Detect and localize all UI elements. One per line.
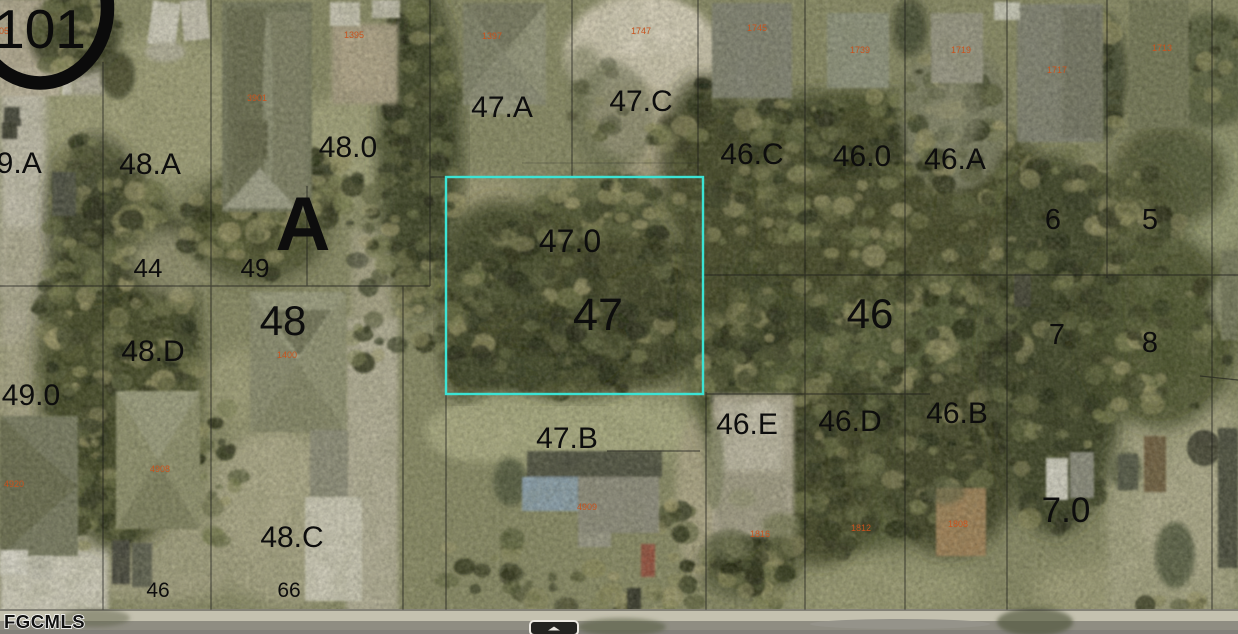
svg-text:46.D: 46.D (818, 405, 881, 438)
svg-text:46.B: 46.B (926, 397, 988, 430)
svg-text:46.0: 46.0 (833, 140, 891, 173)
svg-text:48.D: 48.D (121, 335, 184, 368)
svg-text:1808: 1808 (948, 519, 968, 529)
svg-text:48.A: 48.A (119, 148, 181, 181)
svg-text:46: 46 (847, 290, 894, 337)
svg-text:48.C: 48.C (260, 521, 323, 554)
svg-text:46.C: 46.C (720, 138, 783, 171)
svg-text:48.0: 48.0 (319, 131, 377, 164)
svg-text:1713: 1713 (1152, 43, 1172, 53)
svg-text:1395: 1395 (344, 30, 364, 40)
svg-text:1812: 1812 (851, 523, 871, 533)
svg-text:1397: 1397 (482, 31, 502, 41)
svg-text:6: 6 (1045, 204, 1061, 236)
svg-text:3901: 3901 (247, 93, 267, 103)
svg-text:1747: 1747 (631, 26, 651, 36)
svg-text:1816: 1816 (750, 529, 770, 539)
svg-text:7: 7 (1049, 319, 1065, 351)
svg-text:8: 8 (1142, 327, 1158, 359)
svg-text:47: 47 (573, 289, 623, 340)
svg-text:1719: 1719 (951, 45, 971, 55)
svg-text:7.0: 7.0 (1042, 491, 1091, 530)
svg-text:44: 44 (134, 253, 163, 283)
svg-text:101: 101 (0, 0, 86, 60)
svg-text:49.0: 49.0 (2, 379, 60, 412)
svg-text:1739: 1739 (850, 45, 870, 55)
svg-text:4908: 4908 (150, 464, 170, 474)
svg-text:49.A: 49.A (0, 147, 42, 180)
svg-text:FGCMLS: FGCMLS (4, 611, 85, 632)
svg-text:A: A (276, 182, 331, 267)
svg-text:47.0: 47.0 (539, 223, 601, 259)
svg-text:47.C: 47.C (609, 85, 672, 118)
svg-text:1717: 1717 (1047, 65, 1067, 75)
svg-text:46.A: 46.A (924, 143, 986, 176)
svg-text:4920: 4920 (4, 479, 24, 489)
svg-text:66: 66 (277, 579, 300, 602)
svg-text:5: 5 (1142, 204, 1158, 236)
svg-text:4909: 4909 (577, 502, 597, 512)
svg-text:46.E: 46.E (716, 408, 778, 441)
svg-text:48: 48 (260, 297, 307, 344)
svg-text:46: 46 (146, 579, 169, 602)
svg-text:49: 49 (241, 253, 270, 283)
svg-text:47.B: 47.B (536, 422, 598, 455)
svg-text:47.A: 47.A (471, 91, 533, 124)
svg-text:1400: 1400 (277, 350, 297, 360)
svg-text:1745: 1745 (747, 23, 767, 33)
